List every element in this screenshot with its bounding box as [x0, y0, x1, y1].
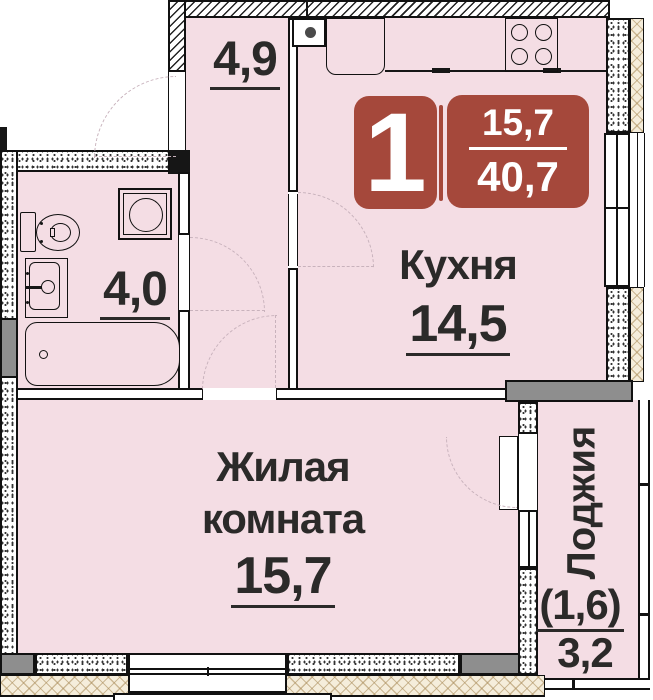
toilet-dot-2	[40, 240, 43, 243]
living-room-name-line1: Жилая	[210, 446, 356, 489]
kitchen-window	[604, 133, 630, 287]
loggia-area-label: 3,2	[540, 632, 630, 675]
bathtub-icon	[25, 322, 180, 386]
entrance-door-leaf-line	[94, 156, 176, 158]
badge-divider-line	[469, 147, 567, 151]
kitchen-vent-icon	[292, 18, 326, 47]
right-wall-lower	[606, 287, 630, 382]
bottom-wall-right	[287, 653, 460, 675]
loggia-glazing-right	[638, 400, 650, 688]
living-room-window	[128, 653, 287, 693]
kitchen-window-outer-line	[637, 133, 645, 287]
toilet-icon	[20, 212, 36, 252]
floor-plan: 1 15,7 40,7 4,9 4,0 Кухня 14,5 Жилая ком…	[0, 0, 653, 700]
right-wall-upper	[606, 18, 630, 133]
loggia-name-label: Лоджия	[540, 412, 624, 592]
badge-separator	[439, 105, 443, 201]
top-wall-divider	[306, 0, 308, 18]
living-top-wall-left	[18, 388, 202, 400]
kitchen-door-leaf-line	[298, 266, 374, 268]
bottom-concrete-right	[460, 653, 520, 675]
badge-living-area: 15,7	[482, 102, 554, 144]
kitchen-name-label: Кухня	[390, 244, 526, 287]
bathroom-area-label: 4,0	[95, 266, 175, 320]
kitchen-area-label: 14,5	[390, 298, 526, 356]
stove-icon	[505, 18, 558, 72]
sink-dot-2	[26, 301, 29, 304]
toilet-dot-1	[40, 222, 43, 225]
kitchen-counter-line	[385, 70, 606, 72]
loggia-window	[518, 510, 538, 568]
living-room-name-line2: комната	[200, 498, 366, 541]
counter-tick-1	[432, 68, 450, 73]
hallway-area-label: 4,9	[205, 36, 285, 90]
living-door-leaf-line	[275, 315, 277, 388]
neighbor-wall-stub	[0, 127, 7, 152]
rooms-count-badge: 1	[354, 96, 437, 209]
fridge-icon	[326, 18, 385, 75]
sink-dot-1	[26, 272, 29, 275]
left-wall-concrete	[0, 318, 18, 378]
right-facade-lower	[630, 287, 644, 382]
bottom-concrete-corner	[0, 653, 35, 675]
toilet-bowl	[36, 214, 80, 251]
bathroom-door-opening	[178, 235, 190, 310]
faucet-icon	[41, 280, 55, 294]
right-facade-upper	[630, 18, 644, 133]
bottom-wall-left	[35, 653, 128, 675]
entrance-wall	[168, 0, 186, 72]
lower-balcony-outline	[113, 693, 332, 700]
loggia-coefficient-label: (1,6)	[530, 584, 630, 632]
balcony-door-opening	[518, 434, 538, 510]
entrance-door-arc	[94, 76, 176, 158]
loggia-top-concrete	[505, 380, 633, 402]
bathroom-door-leaf-line	[190, 310, 265, 312]
bathroom-right-wall-upper	[178, 172, 190, 235]
living-room-area-label: 15,7	[220, 550, 346, 608]
kitchen-wall-lower	[288, 268, 298, 390]
living-top-wall-right	[277, 388, 520, 400]
loggia-wall-upper	[518, 402, 538, 434]
area-badge: 15,7 40,7	[447, 95, 589, 208]
left-exterior-wall	[0, 150, 18, 655]
kitchen-door-opening	[288, 194, 298, 266]
washing-machine-icon	[118, 188, 172, 240]
loggia-glazing-bottom	[538, 678, 650, 690]
badge-total-area: 40,7	[477, 153, 559, 201]
top-wall	[168, 0, 610, 18]
rooms-count: 1	[364, 97, 426, 209]
